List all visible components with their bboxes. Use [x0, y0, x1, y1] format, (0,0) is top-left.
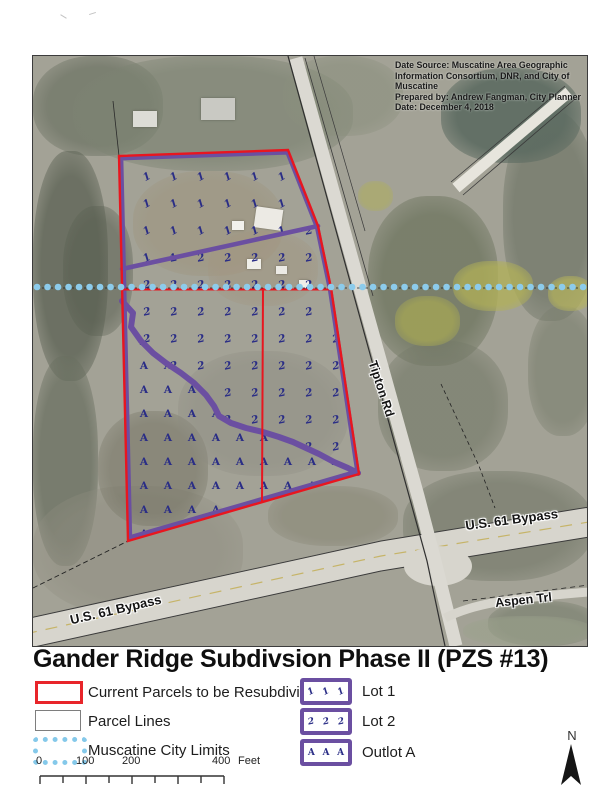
credits-line: Information Consortium, DNR, and City of…	[395, 71, 588, 92]
scale-label-200: 200	[122, 755, 140, 767]
legend-label-lot2: Lot 2	[362, 713, 395, 730]
legend-label-parcel-lines: Parcel Lines	[88, 713, 171, 730]
map-credits: Date Source: Muscatine Area Geographic I…	[395, 60, 588, 113]
credits-line: Date Source: Muscatine Area Geographic	[395, 60, 588, 71]
north-arrow-label: N	[560, 728, 584, 743]
north-arrow-icon	[557, 743, 585, 789]
scale-label-100: 100	[76, 755, 94, 767]
legend-fill-symbol: 2	[307, 716, 315, 727]
legend-fill-symbol: 1	[321, 686, 331, 698]
legend-swatch-lot2: 222	[300, 708, 352, 735]
legend-fill-symbol: 2	[322, 716, 330, 727]
scale-unit-label: Feet	[238, 755, 260, 767]
scale-label-0: 0	[36, 755, 42, 767]
legend-fill-symbol: A	[308, 748, 315, 758]
scale-label-400: 400	[212, 755, 230, 767]
legend-label-current-parcels: Current Parcels to be Resubdivided	[88, 684, 325, 701]
credits-line: Date: December 4, 2018	[395, 102, 588, 113]
legend-fill-symbol: 1	[336, 686, 346, 698]
credits-line: Prepared by: Andrew Fangman, City Planne…	[395, 92, 588, 103]
legend-swatch-parcel-lines	[35, 710, 81, 731]
legend-fill-symbol: 1	[306, 686, 316, 698]
legend-label-outlot-a: Outlot A	[362, 744, 415, 761]
scale-bar	[34, 770, 234, 786]
legend-swatch-outlot-a: AAA	[300, 739, 352, 766]
legend-swatch-lot1: 111	[300, 678, 352, 705]
legend-fill-symbol: A	[337, 748, 344, 758]
aerial-map: 1111111111111111111111111111111111111111…	[32, 55, 588, 647]
legend-label-city-limits: Muscatine City Limits	[88, 742, 230, 759]
map-title: Gander Ridge Subdivsion Phase II (PZS #1…	[33, 645, 603, 674]
pencil-mark	[89, 12, 96, 15]
boundaries-layer	[33, 56, 587, 646]
legend-swatch-current-parcels	[35, 681, 83, 704]
legend-fill-symbol: A	[322, 748, 329, 758]
legend-label-lot1: Lot 1	[362, 683, 395, 700]
pencil-mark	[60, 14, 66, 19]
scanned-map-page: 1111111111111111111111111111111111111111…	[0, 0, 614, 800]
legend-fill-symbol: 2	[337, 716, 345, 727]
